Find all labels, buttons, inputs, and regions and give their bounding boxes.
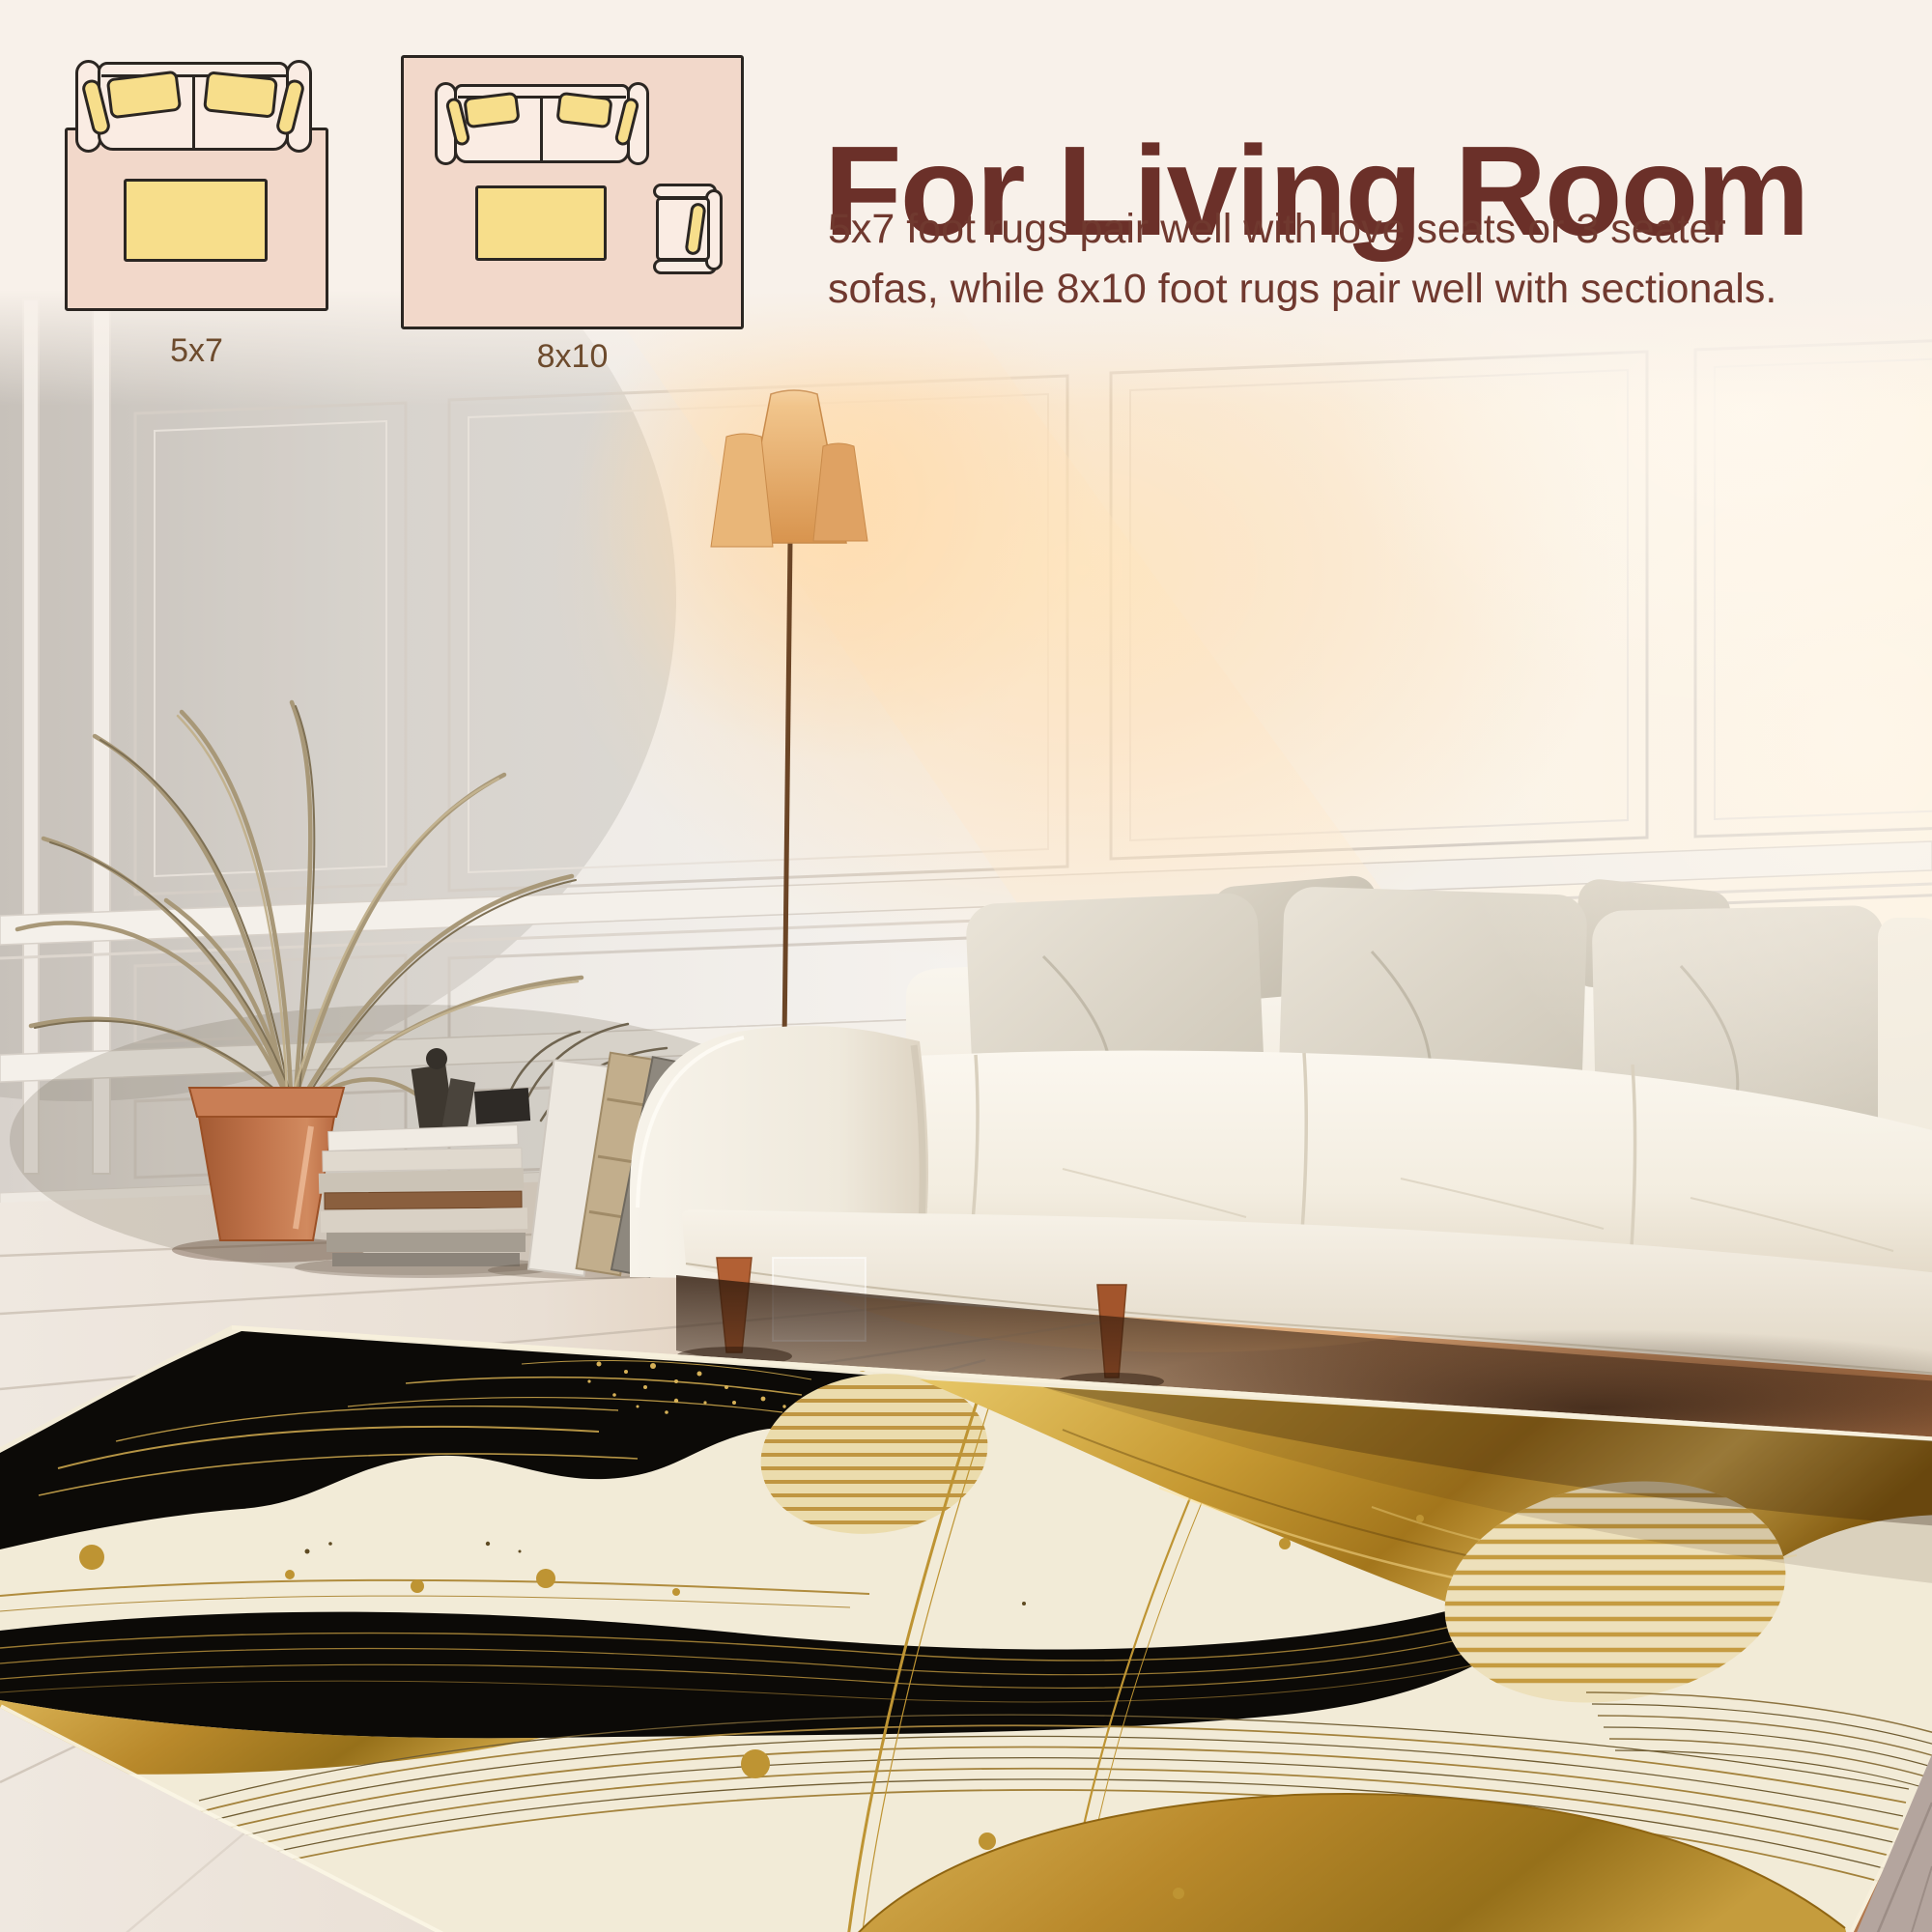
description-line-2: sofas, while 8x10 foot rugs pair well wi… (828, 259, 1776, 319)
rug-size-label-8x10: 8x10 (401, 338, 744, 376)
sofa-seat-divider (540, 99, 543, 160)
scene-illustration (0, 290, 1932, 1932)
sofa-cushion (463, 92, 520, 129)
page-description: 5x7 foot rugs pair well with love seats … (828, 199, 1776, 319)
sofa-cushion (106, 71, 183, 120)
coffee-table-icon (475, 185, 607, 261)
sofa-cushion (555, 92, 612, 129)
living-room-photo (0, 290, 1932, 1932)
rug-size-guide-image: For Living Room 5x7 foot rugs pair well … (0, 0, 1932, 1932)
sofa-cushion (203, 71, 278, 119)
sofa-seat-divider (192, 77, 195, 148)
rug-size-label-5x7: 5x7 (65, 332, 328, 370)
description-line-1: 5x7 foot rugs pair well with love seats … (828, 199, 1776, 259)
coffee-table-icon (124, 179, 268, 262)
